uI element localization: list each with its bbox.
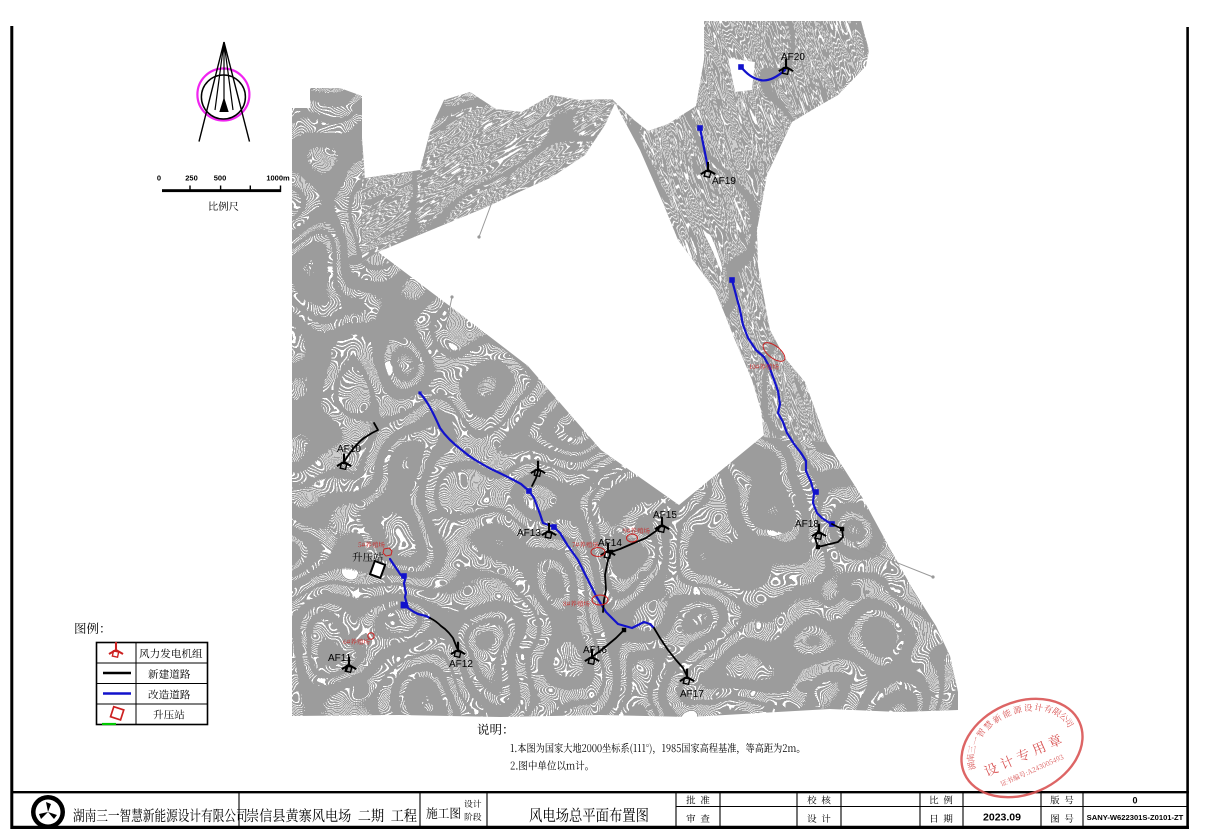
svg-text:1000m: 1000m — [266, 174, 290, 183]
svg-text:2023.09: 2023.09 — [983, 812, 1021, 824]
svg-text:500: 500 — [214, 174, 227, 183]
svg-text:AF17: AF17 — [680, 689, 704, 700]
svg-text:AF13: AF13 — [517, 528, 541, 539]
svg-text:AF12: AF12 — [449, 659, 473, 670]
svg-text:AF15: AF15 — [653, 510, 677, 521]
svg-text:AF20: AF20 — [781, 52, 805, 63]
svg-text:AF16: AF16 — [583, 645, 607, 656]
svg-text:SANY-W622301S-Z0101-ZT: SANY-W622301S-Z0101-ZT — [1087, 813, 1184, 822]
svg-text:AF18: AF18 — [795, 519, 819, 530]
svg-text:0: 0 — [157, 174, 161, 183]
svg-text:AF14: AF14 — [598, 538, 622, 549]
svg-text:AF10: AF10 — [337, 444, 361, 455]
svg-text:AF11: AF11 — [328, 653, 352, 664]
svg-text:AF19: AF19 — [712, 176, 736, 187]
svg-text:0: 0 — [1132, 796, 1137, 806]
svg-text:250: 250 — [185, 174, 198, 183]
